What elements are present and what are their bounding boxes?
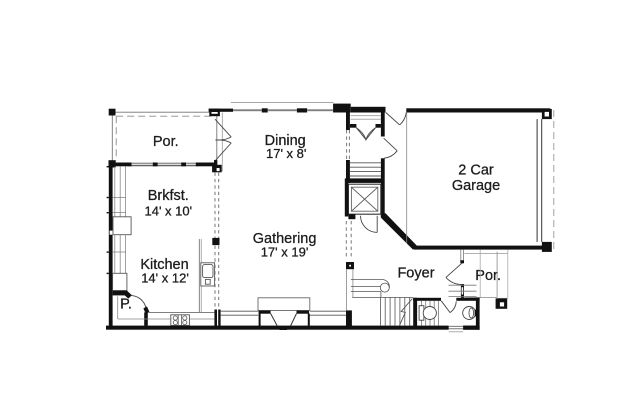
svg-text:Por.: Por.	[153, 134, 179, 150]
svg-text:Brkfst.: Brkfst.	[148, 188, 189, 204]
svg-text:Foyer: Foyer	[397, 265, 434, 281]
svg-text:14' x 10': 14' x 10'	[144, 203, 192, 218]
svg-text:Garage: Garage	[452, 178, 500, 194]
svg-text:P.: P.	[120, 296, 132, 312]
svg-text:14' x 12': 14' x 12'	[141, 270, 189, 285]
svg-text:2 Car: 2 Car	[458, 162, 494, 178]
svg-text:17' x 8': 17' x 8'	[266, 146, 306, 161]
svg-text:17' x 19': 17' x 19'	[261, 245, 309, 260]
